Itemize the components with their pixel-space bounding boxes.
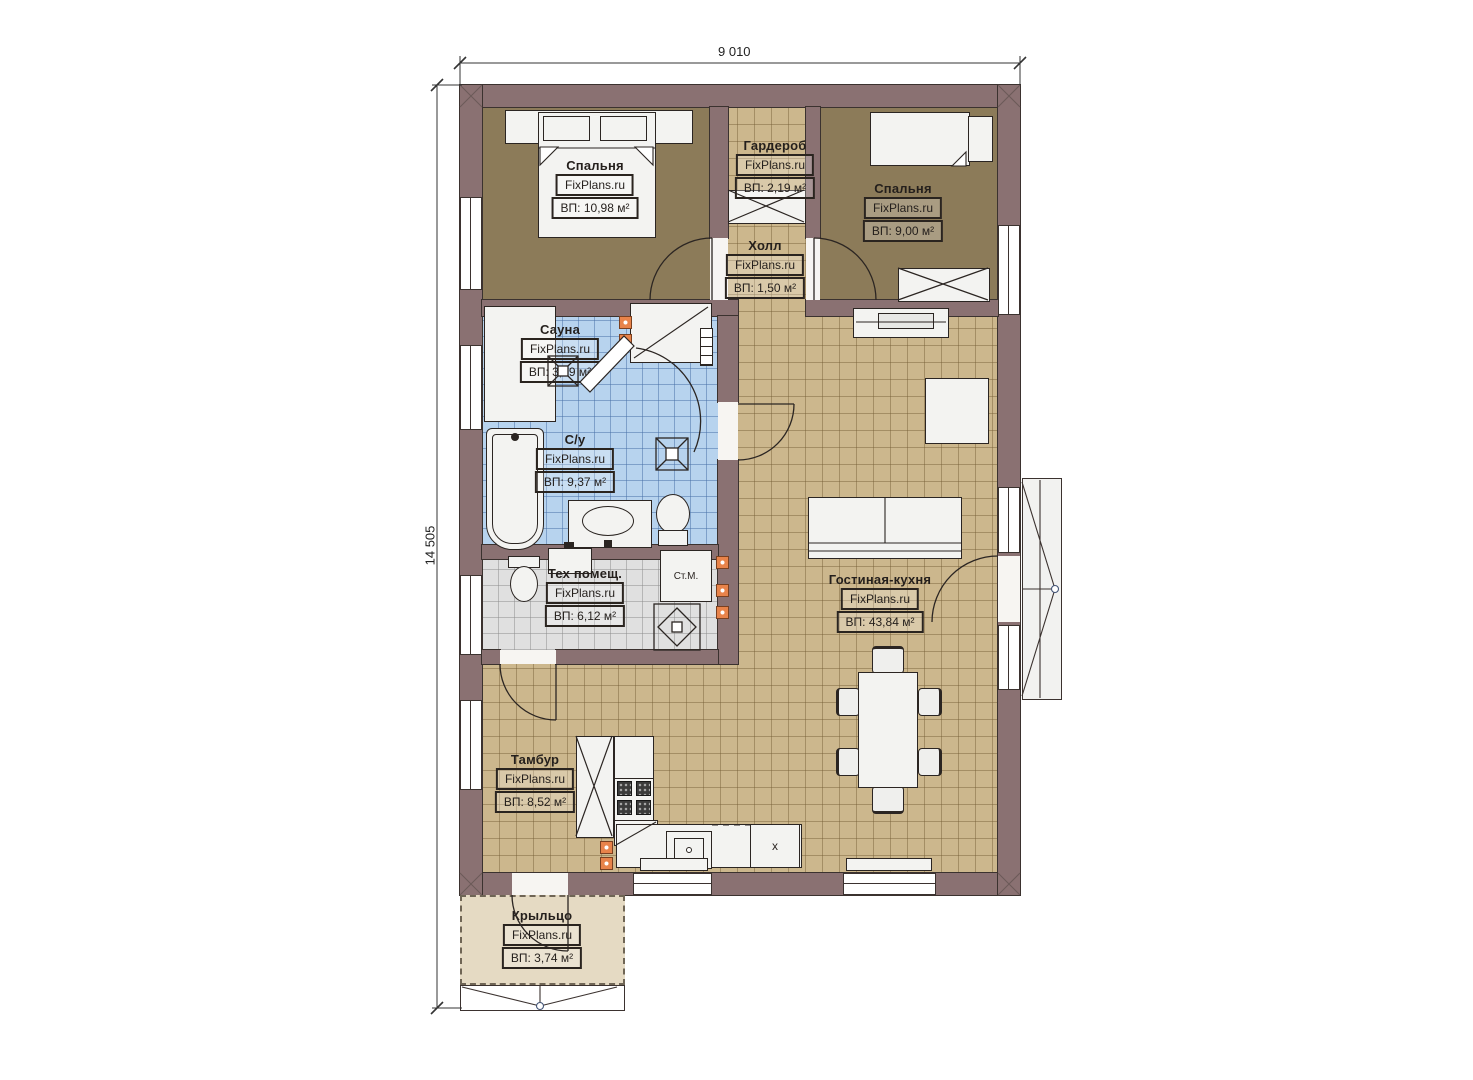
window-right-living-lower — [998, 625, 1020, 690]
watermark-box: FixPlans.ru — [503, 924, 581, 946]
vanity-tap — [604, 540, 612, 547]
watermark-box: FixPlans.ru — [726, 254, 804, 276]
dimension-top-label: 9 010 — [718, 44, 751, 59]
wall-top — [460, 85, 1020, 107]
area-box: ВП: 6,12 м² — [545, 605, 625, 627]
room-label-wardrobe: Гардероб FixPlans.ru ВП: 2,19 м² — [735, 138, 815, 199]
room-name: Спальня — [874, 181, 932, 196]
pillow-left — [543, 116, 590, 141]
room-label-bedroom-1: Спальня FixPlans.ru ВП: 10,98 м² — [552, 158, 639, 219]
watermark-box: FixPlans.ru — [864, 197, 942, 219]
area-box: ВП: 8,52 м² — [495, 791, 575, 813]
room-name: Гардероб — [743, 138, 806, 153]
vent-marker — [716, 556, 729, 569]
vent-marker — [600, 857, 613, 870]
wall-tech-tambour-left — [482, 650, 500, 664]
stove-burner — [617, 800, 632, 815]
single-bed — [870, 112, 970, 166]
room-label-tambour: Тамбур FixPlans.ru ВП: 8,52 м² — [495, 752, 575, 813]
area-box: ВП: 10,98 м² — [552, 197, 639, 219]
area-box: ВП: 9,37 м² — [535, 471, 615, 493]
dining-table — [858, 672, 918, 788]
dining-chair-right-1 — [918, 688, 942, 716]
tv-screen — [878, 313, 934, 329]
room-name: Сауна — [540, 322, 580, 337]
radiator-living — [846, 858, 932, 871]
watermark-box: FixPlans.ru — [546, 582, 624, 604]
dining-chair-right-2 — [918, 748, 942, 776]
pillow-right — [600, 116, 647, 141]
porch-steps — [460, 985, 625, 1011]
area-box: ВП: 43,84 м² — [837, 611, 924, 633]
washing-machine-label: Ст.М. — [674, 571, 699, 582]
watermark-box: FixPlans.ru — [736, 154, 814, 176]
dining-chair-bottom — [872, 786, 904, 814]
room-label-bathroom: С/у FixPlans.ru ВП: 9,37 м² — [535, 432, 615, 493]
side-terrace-steps — [1022, 478, 1062, 700]
window-left-bedroom1 — [460, 197, 482, 290]
toilet-bathroom-bowl — [656, 494, 690, 534]
watermark-box: FixPlans.ru — [841, 588, 919, 610]
doorway-terrace — [998, 556, 1020, 622]
room-label-sauna: Сауна FixPlans.ru ВП: 3,59 м² — [520, 322, 600, 383]
vent-marker — [619, 334, 632, 347]
vent-marker — [716, 584, 729, 597]
room-label-bedroom-2: Спальня FixPlans.ru ВП: 9,00 м² — [863, 181, 943, 242]
room-name: Тамбур — [511, 752, 559, 767]
area-box: ВП: 1,50 м² — [725, 277, 805, 299]
towel-rail — [700, 328, 713, 366]
area-box: ВП: 9,00 м² — [863, 220, 943, 242]
room-name: Холл — [748, 238, 781, 253]
vent-marker — [600, 841, 613, 854]
dining-chair-left-1 — [836, 688, 860, 716]
fridge — [614, 736, 654, 779]
washing-machine: Ст.М. — [660, 550, 712, 602]
wall-tech-tambour-right — [556, 650, 718, 664]
wall-bath-living-upper — [718, 316, 738, 402]
room-name: Гостиная-кухня — [829, 572, 931, 587]
doorway-bathroom — [718, 402, 738, 460]
kitchen-sink-drain — [686, 847, 692, 853]
kitchen-cabinet-x: x — [750, 824, 800, 868]
area-box: ВП: 3,59 м² — [520, 361, 600, 383]
doorway-tambour — [500, 650, 556, 664]
dining-chair-top — [872, 646, 904, 674]
room-label-living-kitchen: Гостиная-кухня FixPlans.ru ВП: 43,84 м² — [829, 572, 931, 633]
area-box: ВП: 2,19 м² — [735, 177, 815, 199]
bathtub-tap — [511, 433, 519, 441]
room-name: Спальня — [566, 158, 624, 173]
room-label-porch: Крыльцо FixPlans.ru ВП: 3,74 м² — [502, 908, 582, 969]
dimension-left-label: 14 505 — [422, 526, 437, 566]
closet-tambour — [576, 736, 614, 838]
single-bed-pillow — [968, 116, 993, 162]
kitchen-cabinet-x-label: x — [772, 839, 778, 853]
bathtub-inner — [492, 434, 538, 544]
watermark-box: FixPlans.ru — [496, 768, 574, 790]
watermark-box: FixPlans.ru — [536, 448, 614, 470]
watermark-box: FixPlans.ru — [556, 174, 634, 196]
armchair-square — [925, 378, 989, 444]
vanity-sink — [582, 506, 634, 536]
watermark-box: FixPlans.ru — [521, 338, 599, 360]
room-name: С/у — [565, 432, 586, 447]
room-name: Крыльцо — [512, 908, 573, 923]
closet-bedroom2 — [898, 268, 990, 302]
window-bottom-living — [843, 873, 936, 895]
window-right-living-upper — [998, 487, 1020, 553]
area-box: ВП: 3,74 м² — [502, 947, 582, 969]
stove-burner — [636, 781, 651, 796]
window-bottom-kitchen — [633, 873, 712, 895]
room-name: Тех помещ. — [548, 566, 622, 581]
sofa — [808, 497, 962, 559]
room-label-tech-room: Тех помещ. FixPlans.ru ВП: 6,12 м² — [545, 566, 625, 627]
radiator-kitchen — [640, 858, 708, 871]
vent-marker — [716, 606, 729, 619]
window-left-tech — [460, 575, 482, 655]
window-left-sauna — [460, 345, 482, 430]
vent-marker — [619, 316, 632, 329]
doorway-entrance — [512, 873, 568, 895]
room-label-hall: Холл FixPlans.ru ВП: 1,50 м² — [725, 238, 805, 299]
stove-burner — [636, 800, 651, 815]
stove-burner — [617, 781, 632, 796]
window-right-bedroom2 — [998, 225, 1020, 315]
doorway-bedroom-2 — [806, 238, 820, 300]
toilet-tech-bowl — [510, 566, 538, 602]
dining-chair-left-2 — [836, 748, 860, 776]
floor-plan-canvas: Ст.М. x Спальня FixPlans.ru ВП: 10,98 м²… — [0, 0, 1473, 1080]
window-left-tambour — [460, 700, 482, 790]
toilet-bathroom-tank — [658, 530, 688, 546]
wall-bedroom1-hall — [710, 107, 728, 238]
